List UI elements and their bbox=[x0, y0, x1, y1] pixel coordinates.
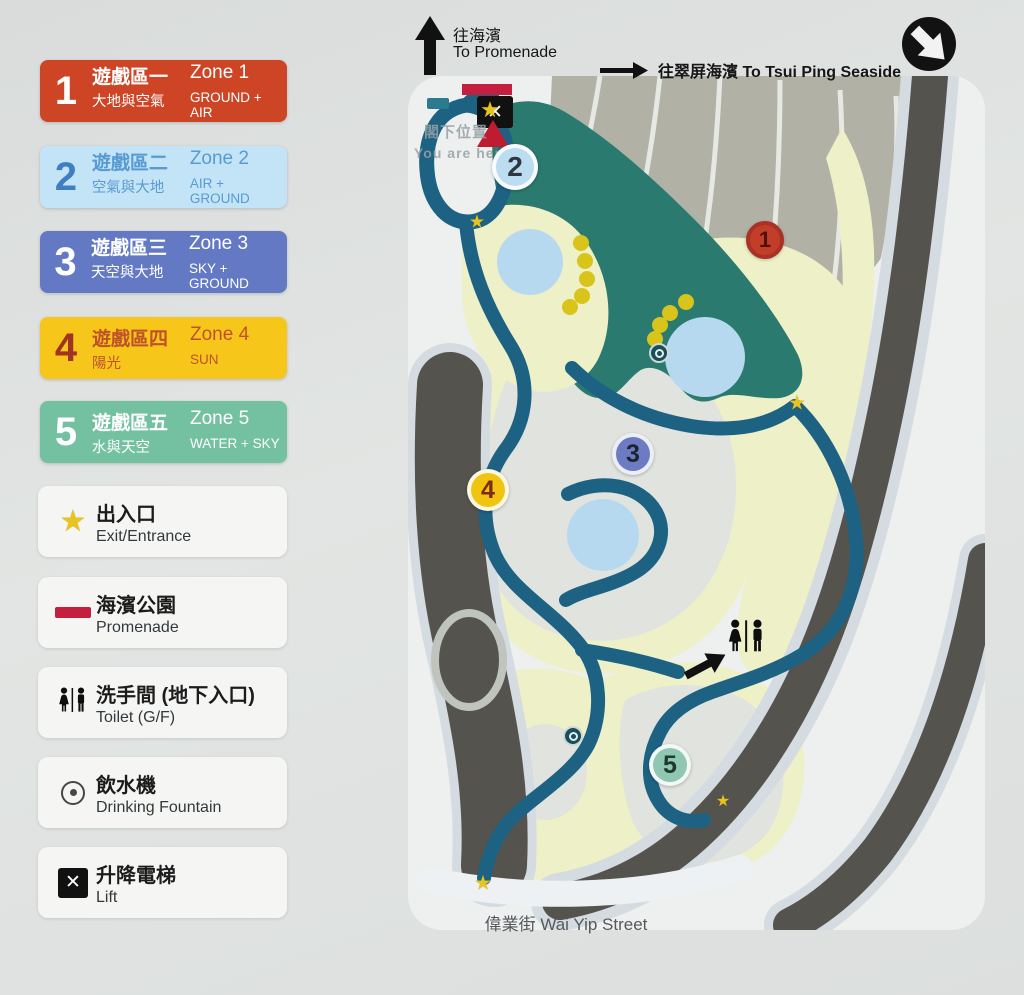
pool-upper-right bbox=[665, 317, 745, 397]
to-promenade-en: To Promenade bbox=[453, 44, 557, 62]
to-promenade-zh: 往海濱 bbox=[453, 22, 501, 46]
legend-zone-2: 2 遊戲區二Zone 2 空氣與大地AIR + GROUND bbox=[40, 146, 287, 208]
legend-item-exit: ★ 出入口 Exit/Entrance bbox=[38, 486, 287, 557]
right-arrow-icon bbox=[600, 61, 648, 79]
zone1-marker: 1 bbox=[746, 221, 784, 259]
you-are-here-zh: 閣下位置 bbox=[424, 121, 488, 142]
fountain-marker-north bbox=[649, 343, 669, 363]
park-map-sign: ✕ 閣下位置 You are here 1 2 3 4 5 ★ ★ ★ ★ ★ bbox=[0, 0, 1024, 995]
zone4-number: 4 bbox=[40, 328, 92, 368]
zone3-number: 3 bbox=[40, 242, 91, 282]
zone5-number: 5 bbox=[40, 412, 92, 452]
zone2-number: 2 bbox=[40, 157, 92, 197]
zone3-marker: 3 bbox=[612, 433, 654, 475]
legend-item-toilet: 洗手間 (地下入口) Toilet (G/F) bbox=[38, 667, 287, 738]
legend-item-fountain: 飲水機 Drinking Fountain bbox=[38, 757, 287, 828]
entrance-star-east: ★ bbox=[788, 391, 806, 416]
entrance-star-top: ★ bbox=[480, 97, 500, 123]
legend-zone-4: 4 遊戲區四Zone 4 陽光SUN bbox=[40, 317, 287, 379]
fountain-marker-south bbox=[563, 726, 583, 746]
legend-item-lift: ✕ 升降電梯 Lift bbox=[38, 847, 287, 918]
entrance-star-loop: ★ bbox=[469, 212, 485, 233]
legend-zone-1: 1 遊戲區一Zone 1 大地與空氣GROUND + AIR bbox=[40, 60, 287, 122]
path-stub bbox=[427, 98, 449, 109]
up-arrow-icon bbox=[415, 16, 445, 76]
fountain-icon bbox=[61, 781, 85, 805]
legend-item-promenade: 海濱公園 Promenade bbox=[38, 577, 287, 648]
to-seaside-label: 往翠屏海濱 To Tsui Ping Seaside bbox=[658, 58, 901, 82]
pool-upper-left bbox=[497, 229, 563, 295]
zone2-marker: 2 bbox=[492, 144, 538, 190]
entrance-star-south: ★ bbox=[716, 791, 730, 811]
street-label: 偉業街 Wai Yip Street bbox=[485, 910, 648, 935]
zone4-marker: 4 bbox=[467, 469, 509, 511]
pool-central bbox=[567, 499, 639, 571]
legend-zone-5: 5 遊戲區五Zone 5 水與天空WATER + SKY bbox=[40, 401, 287, 463]
entrance-star-bottom: ★ bbox=[474, 871, 492, 896]
legend-zone-3: 3 遊戲區三Zone 3 天空與大地SKY + GROUND bbox=[40, 231, 287, 293]
compass-icon bbox=[900, 15, 958, 73]
zone1-number: 1 bbox=[40, 71, 92, 111]
promenade-strip bbox=[462, 84, 512, 95]
promenade-icon bbox=[55, 607, 91, 618]
toilet-icon bbox=[57, 687, 89, 719]
star-icon: ★ bbox=[60, 504, 87, 539]
lift-icon: ✕ bbox=[58, 868, 88, 898]
zone5-marker: 5 bbox=[649, 744, 691, 786]
toilet-marker bbox=[726, 618, 768, 662]
